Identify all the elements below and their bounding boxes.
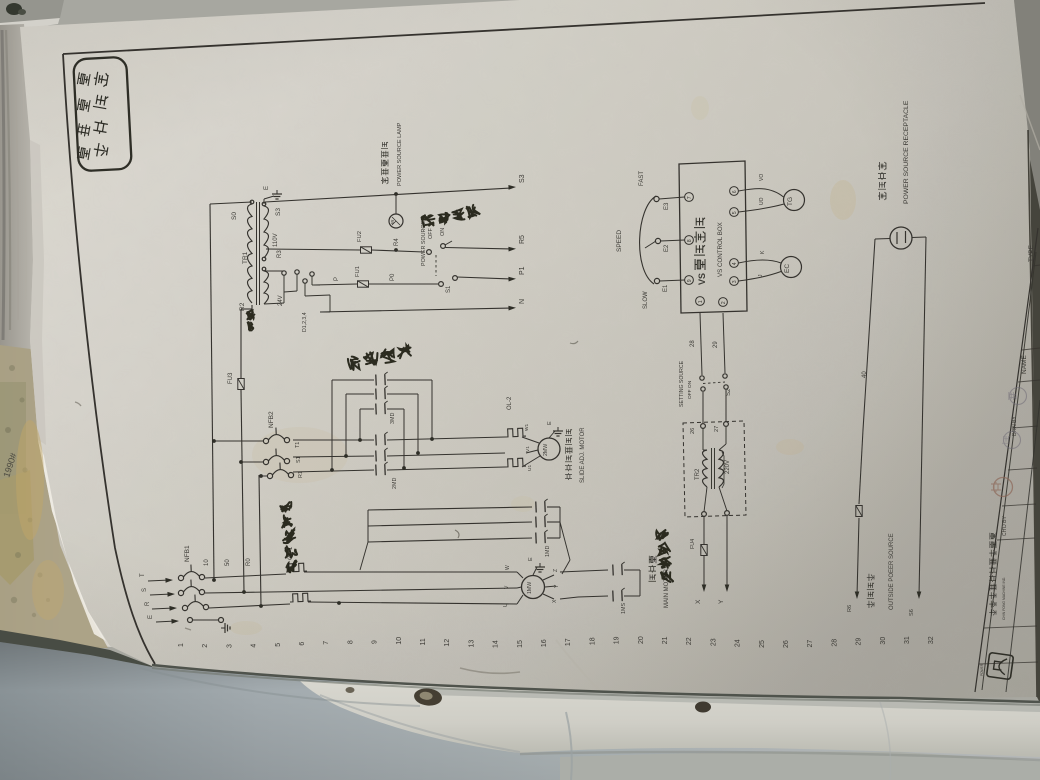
svg-text:W: W: [505, 565, 511, 570]
svg-text:T1: T1: [295, 442, 301, 448]
svg-text:P1: P1: [519, 266, 526, 275]
svg-text:2: 2: [202, 644, 209, 648]
svg-text:24V: 24V: [278, 295, 284, 306]
svg-text:3: 3: [732, 280, 738, 283]
svg-text:7: 7: [687, 196, 693, 199]
svg-text:18: 18: [589, 637, 596, 645]
svg-text:R4: R4: [394, 238, 400, 246]
svg-text:S3: S3: [519, 174, 526, 183]
svg-text:VS: VS: [697, 273, 707, 285]
svg-text:2MW: 2MW: [543, 444, 549, 456]
svg-text:10: 10: [396, 637, 403, 645]
svg-text:R: R: [145, 601, 151, 606]
svg-text:V1: V1: [525, 446, 531, 452]
svg-text:POWER: POWER: [980, 663, 984, 676]
svg-text:P0: P0: [390, 273, 396, 281]
svg-text:12: 12: [444, 639, 451, 647]
svg-text:OL-2: OL-2: [507, 396, 513, 410]
svg-text:SPEED: SPEED: [616, 230, 623, 252]
svg-text:3: 3: [226, 644, 233, 648]
svg-text:20: 20: [638, 636, 645, 644]
svg-text:22: 22: [686, 637, 693, 645]
svg-text:E2: E2: [664, 244, 670, 252]
svg-text:R0: R0: [246, 558, 252, 566]
svg-text:24: 24: [735, 639, 742, 647]
svg-text:6: 6: [732, 190, 738, 193]
svg-text:R5: R5: [519, 235, 526, 244]
svg-text:FU4: FU4: [690, 539, 696, 549]
svg-text:FU1: FU1: [355, 266, 361, 277]
svg-text:R3: R3: [277, 250, 283, 258]
svg-text:OFF: OFF: [428, 228, 434, 239]
svg-text:4: 4: [732, 262, 738, 265]
svg-text:28: 28: [831, 639, 838, 647]
svg-text:8: 8: [687, 239, 693, 242]
svg-text:29: 29: [856, 638, 863, 646]
svg-text:VS CONTROL BOX: VS CONTROL BOX: [717, 222, 724, 277]
svg-text:FU3: FU3: [228, 372, 234, 384]
svg-text:S1: S1: [446, 285, 452, 293]
svg-text:NFB1: NFB1: [184, 545, 191, 562]
svg-text:28: 28: [690, 340, 696, 347]
svg-text:9: 9: [372, 640, 379, 644]
svg-text:POWER SOURCE RECEPTACLE: POWER SOURCE RECEPTACLE: [903, 100, 910, 204]
svg-text:14: 14: [493, 640, 500, 648]
svg-text:7: 7: [323, 641, 330, 645]
svg-text:23: 23: [710, 638, 717, 646]
svg-text:E: E: [148, 615, 154, 619]
svg-text:EC: EC: [784, 264, 791, 273]
svg-text:E1: E1: [663, 284, 669, 292]
svg-text:16: 16: [541, 639, 548, 647]
svg-text:E3: E3: [664, 202, 670, 210]
svg-text:NAME: NAME: [1021, 355, 1028, 374]
svg-text:SLOW: SLOW: [643, 291, 649, 309]
svg-text:N: N: [519, 299, 526, 304]
svg-text:W1: W1: [524, 423, 530, 431]
svg-text:U1: U1: [527, 465, 533, 471]
svg-text:POWER SOURCE LAMP: POWER SOURCE LAMP: [397, 122, 403, 186]
svg-text:SLIDE ADJ. MOTOR: SLIDE ADJ. MOTOR: [580, 427, 586, 483]
svg-text:CH'D BY: CH'D BY: [1002, 515, 1008, 536]
svg-text:E: E: [547, 421, 553, 425]
svg-text:11: 11: [420, 638, 427, 645]
svg-text:S0: S0: [231, 212, 238, 220]
svg-text:SETTING SOURCE: SETTING SOURCE: [679, 360, 685, 407]
svg-text:19: 19: [614, 636, 621, 644]
svg-text:R2: R2: [239, 302, 246, 311]
svg-text:1: 1: [698, 300, 704, 303]
svg-text:9: 9: [687, 279, 693, 282]
svg-text:T: T: [140, 573, 146, 577]
svg-text:4: 4: [251, 644, 258, 648]
svg-text:5: 5: [732, 211, 738, 214]
svg-text:50: 50: [225, 559, 231, 566]
svg-text:8: 8: [347, 640, 354, 644]
svg-text:2MD: 2MD: [392, 478, 398, 489]
svg-text:S6: S6: [909, 609, 915, 616]
svg-text:27: 27: [807, 640, 814, 648]
svg-text:E: E: [264, 186, 270, 190]
svg-text:1MW: 1MW: [527, 582, 533, 594]
svg-text:UO: UO: [759, 197, 765, 205]
svg-text:TR1: TR1: [242, 251, 249, 264]
svg-text:10: 10: [204, 559, 210, 566]
svg-text:29: 29: [713, 341, 719, 348]
svg-text:E: E: [528, 557, 534, 561]
svg-text:OFF: OFF: [687, 389, 693, 399]
svg-text:NFB2: NFB2: [268, 411, 275, 428]
svg-text:27: 27: [714, 426, 720, 432]
svg-text:TYPE: TYPE: [1028, 244, 1035, 262]
svg-text:U: U: [503, 603, 509, 607]
svg-text:P: P: [334, 277, 340, 281]
svg-text:TR2: TR2: [695, 468, 701, 480]
svg-text:15: 15: [517, 640, 524, 648]
svg-text:220V: 220V: [725, 460, 731, 474]
svg-text:OUTSIDE POEER SOURCE: OUTSIDE POEER SOURCE: [889, 533, 895, 610]
svg-text:5: 5: [275, 643, 282, 647]
svg-text:D1,2,3,4: D1,2,3,4: [302, 312, 308, 332]
svg-text:21: 21: [662, 636, 669, 644]
svg-text:S3: S3: [275, 208, 282, 216]
svg-text:ON: ON: [440, 228, 446, 236]
svg-text:FU2: FU2: [357, 231, 363, 242]
svg-text:25: 25: [759, 640, 766, 648]
svg-text:30: 30: [880, 637, 887, 645]
svg-text:17: 17: [565, 638, 572, 646]
svg-text:110V: 110V: [273, 233, 279, 247]
svg-text:31: 31: [904, 636, 911, 644]
svg-text:TG: TG: [787, 197, 794, 206]
svg-text:Z: Z: [553, 569, 559, 572]
svg-text:VO: VO: [759, 174, 765, 181]
svg-text:2: 2: [721, 301, 727, 304]
svg-text:13: 13: [468, 640, 475, 648]
svg-text:32: 32: [928, 636, 935, 644]
svg-text:26: 26: [690, 428, 696, 434]
svg-text:Y: Y: [718, 599, 725, 604]
svg-text:40: 40: [862, 371, 868, 378]
svg-text:1: 1: [178, 643, 185, 647]
svg-text:R6: R6: [847, 605, 853, 612]
svg-text:S2: S2: [726, 388, 732, 396]
svg-text:1MS: 1MS: [621, 603, 627, 614]
svg-text:3MD: 3MD: [390, 413, 396, 424]
svg-text:CHIN FONG MACHINE IND.: CHIN FONG MACHINE IND.: [1002, 577, 1006, 620]
svg-text:ON: ON: [687, 380, 693, 388]
svg-text:26: 26: [783, 640, 790, 648]
svg-text:1MD: 1MD: [545, 546, 551, 557]
svg-text:6: 6: [299, 642, 306, 646]
svg-text:FAST: FAST: [639, 171, 645, 186]
svg-text:X: X: [695, 599, 702, 604]
svg-text:S: S: [142, 588, 148, 592]
